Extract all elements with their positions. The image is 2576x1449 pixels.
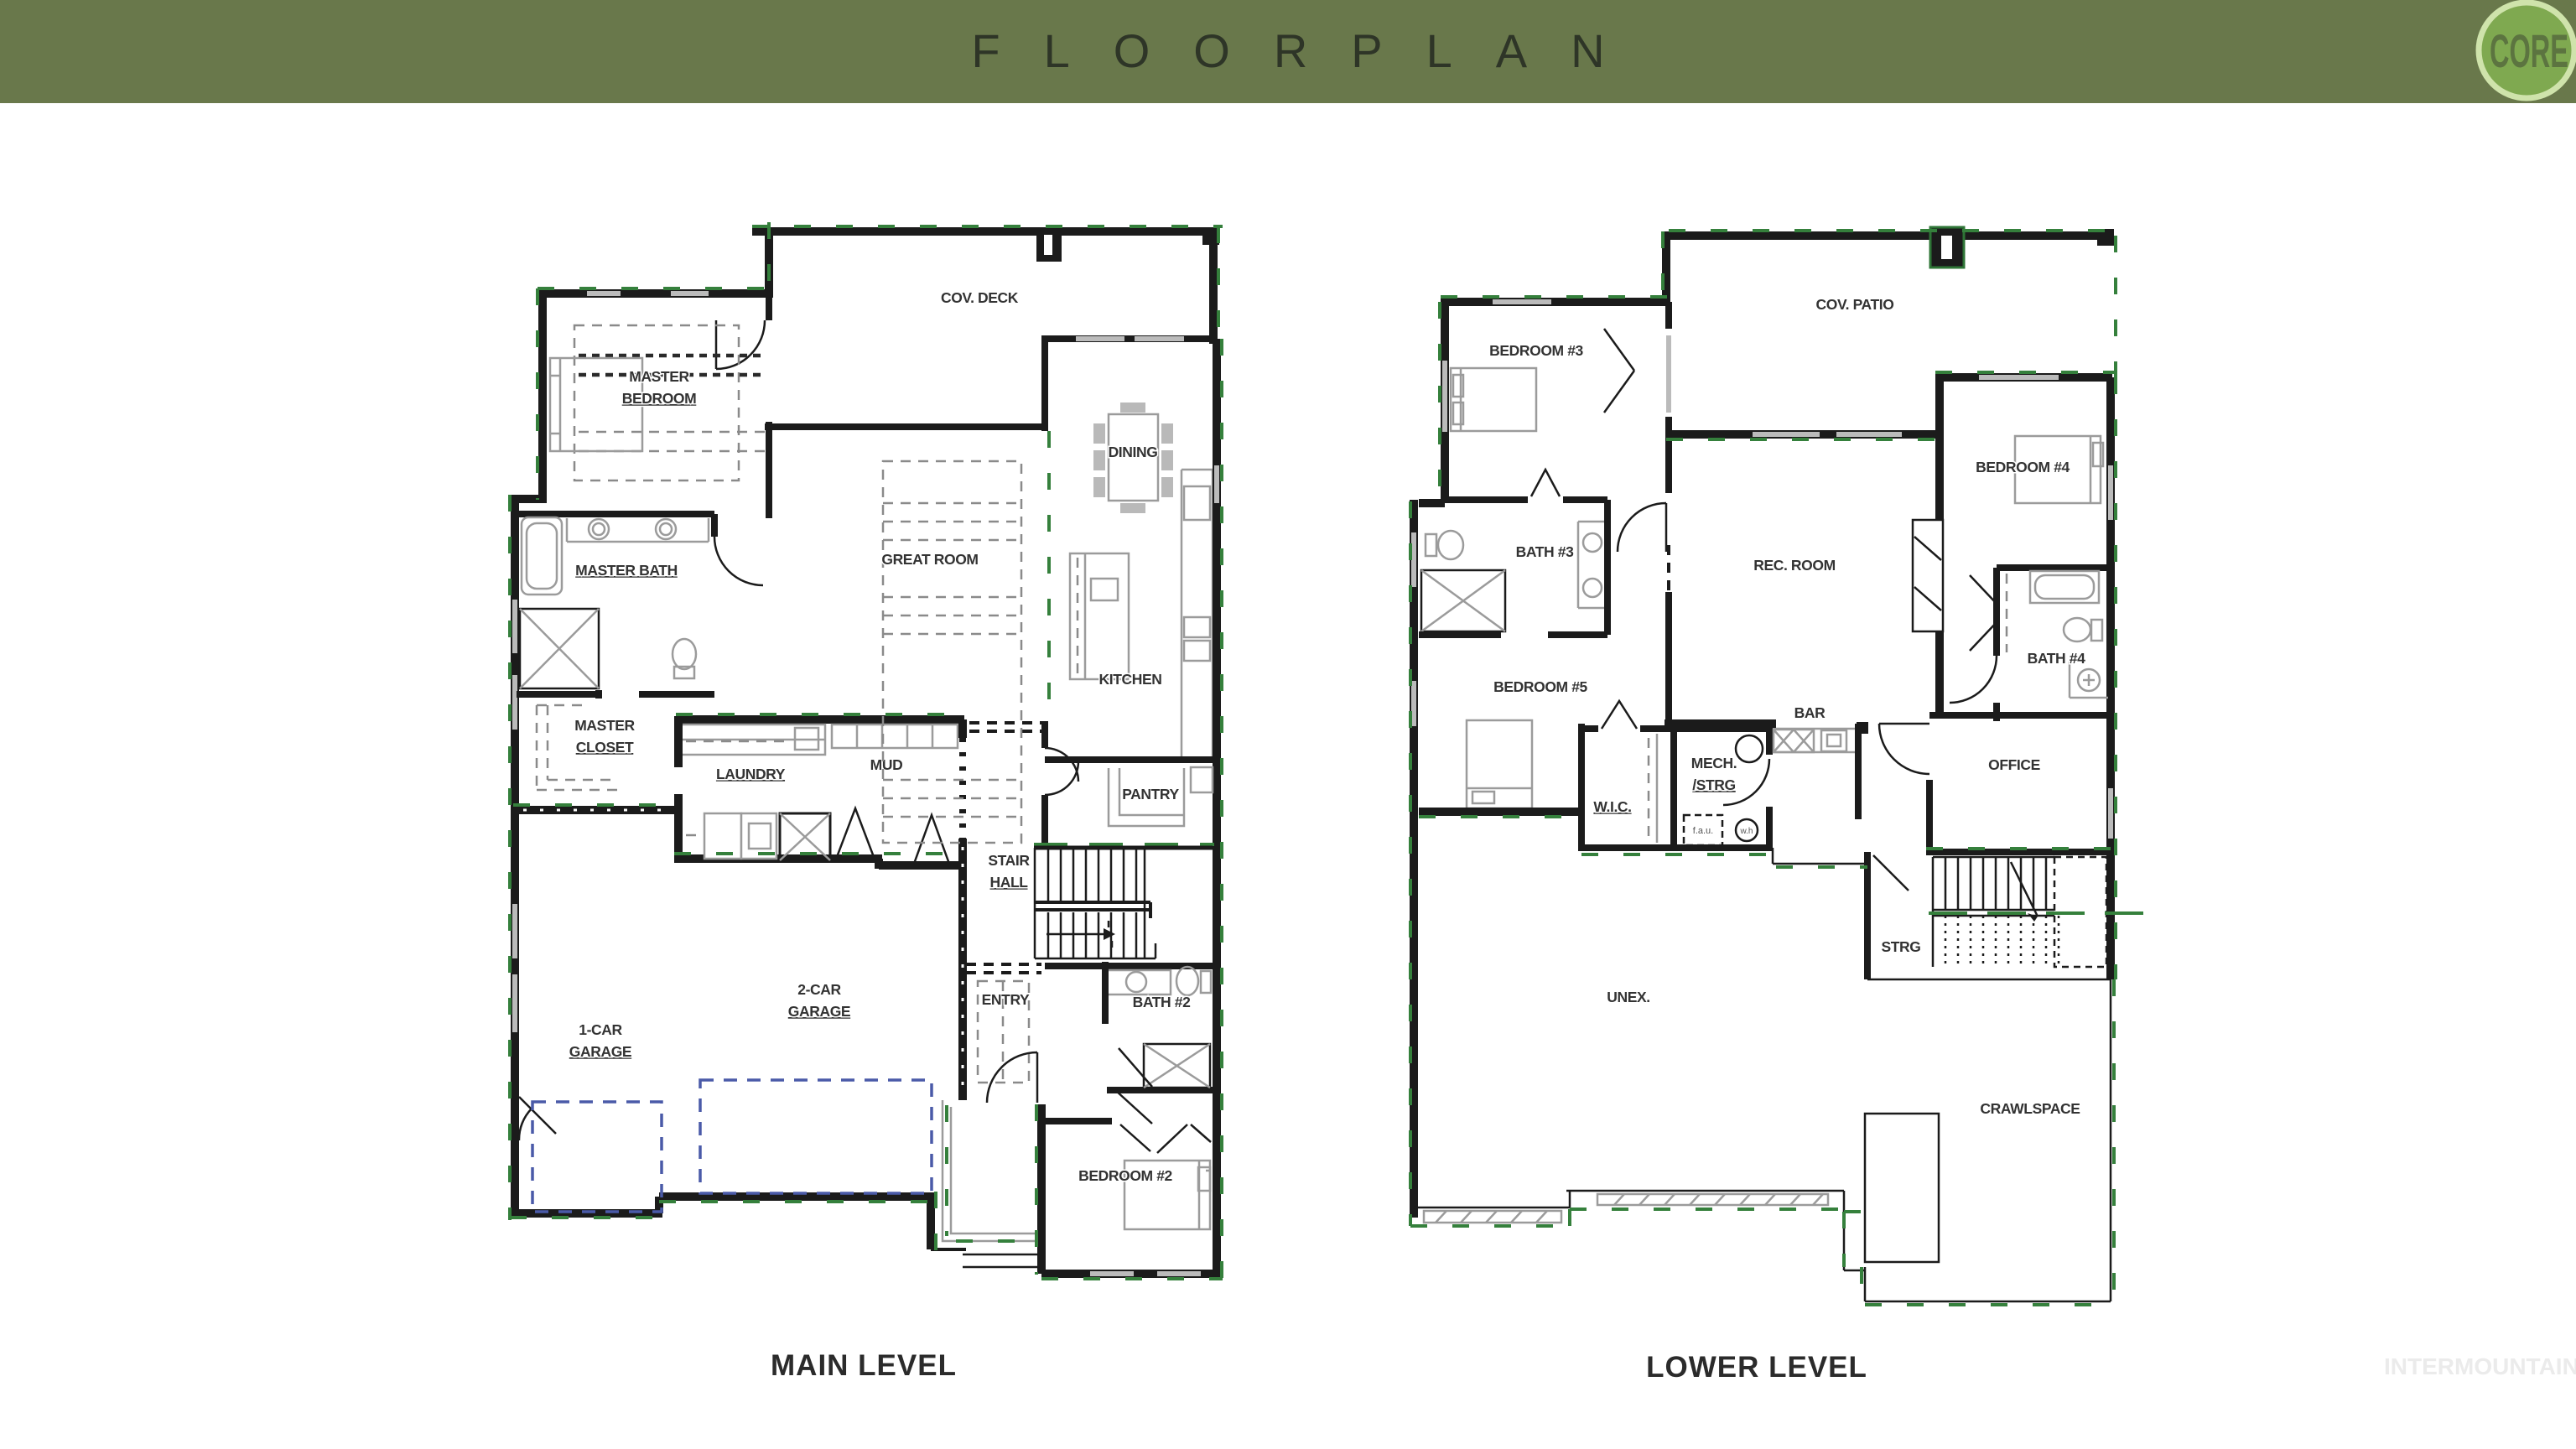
svg-text:CORE: CORE (2490, 24, 2568, 77)
svg-text:STRG: STRG (1881, 938, 1920, 955)
svg-text:BATH #4: BATH #4 (2028, 650, 2085, 667)
svg-text:STAIR: STAIR (988, 852, 1030, 869)
svg-text:MASTER BATH: MASTER BATH (575, 562, 678, 579)
svg-text:BATH #2: BATH #2 (1133, 994, 1191, 1010)
svg-text:MECH.: MECH. (1691, 755, 1737, 771)
svg-text:INTERMOUNTAIN: INTERMOUNTAIN (2384, 1353, 2576, 1379)
svg-text:CLOSET: CLOSET (576, 739, 634, 756)
svg-text:BATH #3: BATH #3 (1516, 543, 1574, 560)
svg-text:1-CAR: 1-CAR (579, 1021, 622, 1038)
svg-text:GARAGE: GARAGE (788, 1003, 850, 1020)
svg-text:BEDROOM #4: BEDROOM #4 (1976, 459, 2070, 475)
svg-text:/STRG: /STRG (1692, 776, 1735, 793)
svg-text:BEDROOM #2: BEDROOM #2 (1078, 1167, 1172, 1184)
svg-text:W.I.C.: W.I.C. (1593, 798, 1631, 815)
svg-text:BEDROOM #5: BEDROOM #5 (1493, 678, 1587, 695)
svg-text:MAIN LEVEL: MAIN LEVEL (771, 1349, 957, 1382)
svg-text:COV. PATIO: COV. PATIO (1816, 296, 1894, 313)
svg-text:OFFICE: OFFICE (1988, 756, 2040, 773)
svg-text:MASTER: MASTER (629, 368, 689, 385)
svg-text:GARAGE: GARAGE (569, 1043, 631, 1060)
svg-text:DINING: DINING (1109, 444, 1158, 460)
svg-text:COV. DECK: COV. DECK (941, 289, 1019, 306)
svg-text:ENTRY: ENTRY (982, 991, 1030, 1008)
svg-text:BEDROOM: BEDROOM (622, 390, 697, 407)
svg-text:2-CAR: 2-CAR (797, 981, 841, 998)
svg-text:MUD: MUD (870, 756, 903, 773)
svg-text:GREAT ROOM: GREAT ROOM (881, 551, 978, 568)
svg-text:CRAWLSPACE: CRAWLSPACE (1980, 1100, 2080, 1117)
svg-text:REC. ROOM: REC. ROOM (1753, 557, 1836, 574)
svg-text:LOWER LEVEL: LOWER LEVEL (1646, 1351, 1867, 1384)
svg-text:MASTER: MASTER (574, 717, 635, 734)
svg-text:HALL: HALL (989, 874, 1028, 891)
svg-text:KITCHEN: KITCHEN (1099, 671, 1162, 688)
svg-text:UNEX.: UNEX. (1607, 989, 1649, 1005)
svg-text:w.h: w.h (1739, 827, 1753, 836)
svg-text:BEDROOM #3: BEDROOM #3 (1489, 342, 1583, 359)
svg-text:LAUNDRY: LAUNDRY (716, 766, 786, 782)
svg-text:f.a.u.: f.a.u. (1693, 826, 1713, 836)
svg-text:BAR: BAR (1794, 704, 1826, 721)
svg-text:PANTRY: PANTRY (1122, 786, 1179, 802)
